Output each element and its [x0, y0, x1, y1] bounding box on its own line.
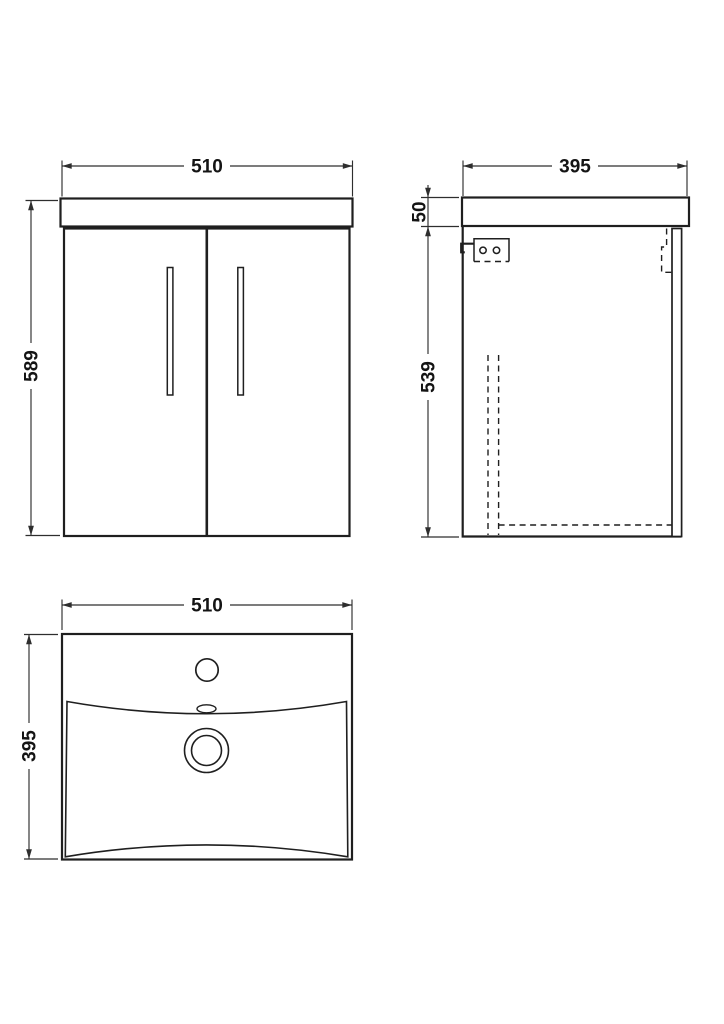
bracket-screw-hole	[480, 247, 486, 253]
plan-width-dimension: 510	[62, 594, 352, 630]
front-width-dimension: 510	[62, 155, 353, 197]
basin-overflow	[197, 705, 216, 713]
plan-depth-label: 395	[20, 730, 41, 762]
vanity-technical-drawing: 510 589	[0, 0, 724, 1024]
front-width-label: 510	[191, 157, 223, 178]
basin-inner-bowl	[65, 702, 348, 857]
side-height-label: 539	[419, 361, 440, 393]
basin-tap-hole	[196, 659, 218, 681]
side-door	[672, 229, 682, 537]
front-worktop	[61, 199, 353, 227]
side-cabinet-outline	[463, 226, 682, 537]
side-worktop-dimension: 50	[410, 185, 459, 227]
side-elevation-view: 395 50 539	[410, 155, 689, 537]
side-depth-dimension: 395	[463, 155, 687, 196]
technical-drawing-page: 510 589	[0, 0, 724, 1024]
front-height-dimension: 589	[21, 201, 60, 536]
plan-depth-dimension: 395	[19, 635, 58, 860]
front-door-handle-left	[167, 268, 173, 396]
side-hinge-hidden-line	[662, 229, 672, 273]
side-wall-bracket	[461, 239, 509, 262]
plan-width-label: 510	[191, 596, 223, 617]
side-height-dimension: 539	[418, 227, 459, 538]
front-elevation-view: 510 589	[21, 155, 353, 536]
basin-plan-view: 510 395	[19, 594, 352, 860]
bracket-screw-hole	[493, 247, 499, 253]
front-height-label: 589	[22, 350, 43, 382]
front-door-handle-right	[238, 268, 244, 396]
side-depth-label: 395	[559, 157, 591, 178]
side-worktop-label: 50	[410, 201, 431, 222]
basin-waste-inner	[192, 736, 222, 766]
side-worktop	[462, 198, 689, 227]
